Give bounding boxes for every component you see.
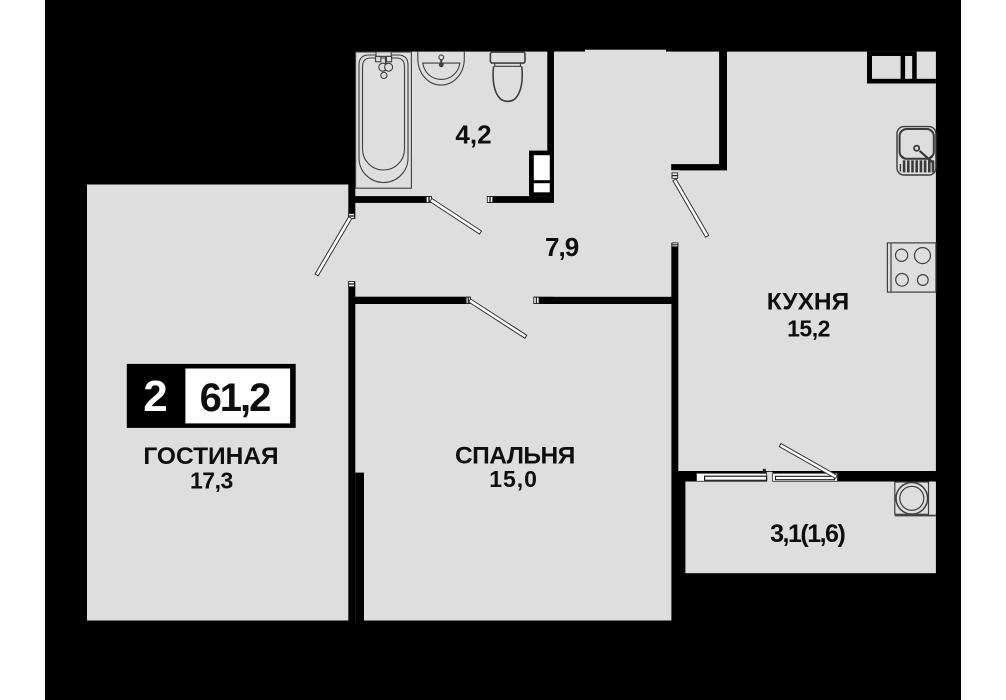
svg-text:61,2: 61,2 — [200, 376, 271, 420]
svg-text:ГОСТИНАЯ: ГОСТИНАЯ — [143, 443, 278, 470]
svg-text:2: 2 — [143, 372, 167, 421]
svg-text:4,2: 4,2 — [455, 119, 491, 149]
svg-text:КУХНЯ: КУХНЯ — [767, 289, 849, 316]
svg-text:7,9: 7,9 — [545, 232, 579, 262]
svg-text:3,1(1,6): 3,1(1,6) — [770, 520, 845, 548]
svg-text:15,2: 15,2 — [787, 315, 830, 341]
svg-text:15,0: 15,0 — [489, 466, 538, 492]
svg-text:17,3: 17,3 — [190, 468, 233, 494]
